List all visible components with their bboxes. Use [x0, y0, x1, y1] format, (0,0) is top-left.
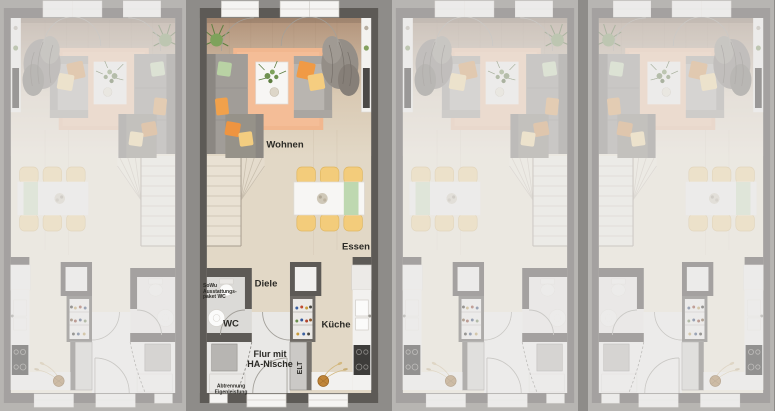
unit-panel-4[interactable] — [588, 0, 774, 411]
unit-panel-1[interactable] — [0, 0, 186, 411]
floorplan-strip: Wohnen Essen Diele WC Küche Flur mit HA-… — [0, 0, 775, 411]
unit-panel-2-selected[interactable]: Wohnen Essen Diele WC Küche Flur mit HA-… — [196, 0, 382, 411]
floorplan-drawing — [0, 0, 186, 411]
floorplan-drawing — [392, 0, 578, 411]
floorplan-drawing — [588, 0, 774, 411]
unit-panel-3[interactable] — [392, 0, 578, 411]
floorplan-drawing — [196, 0, 382, 411]
